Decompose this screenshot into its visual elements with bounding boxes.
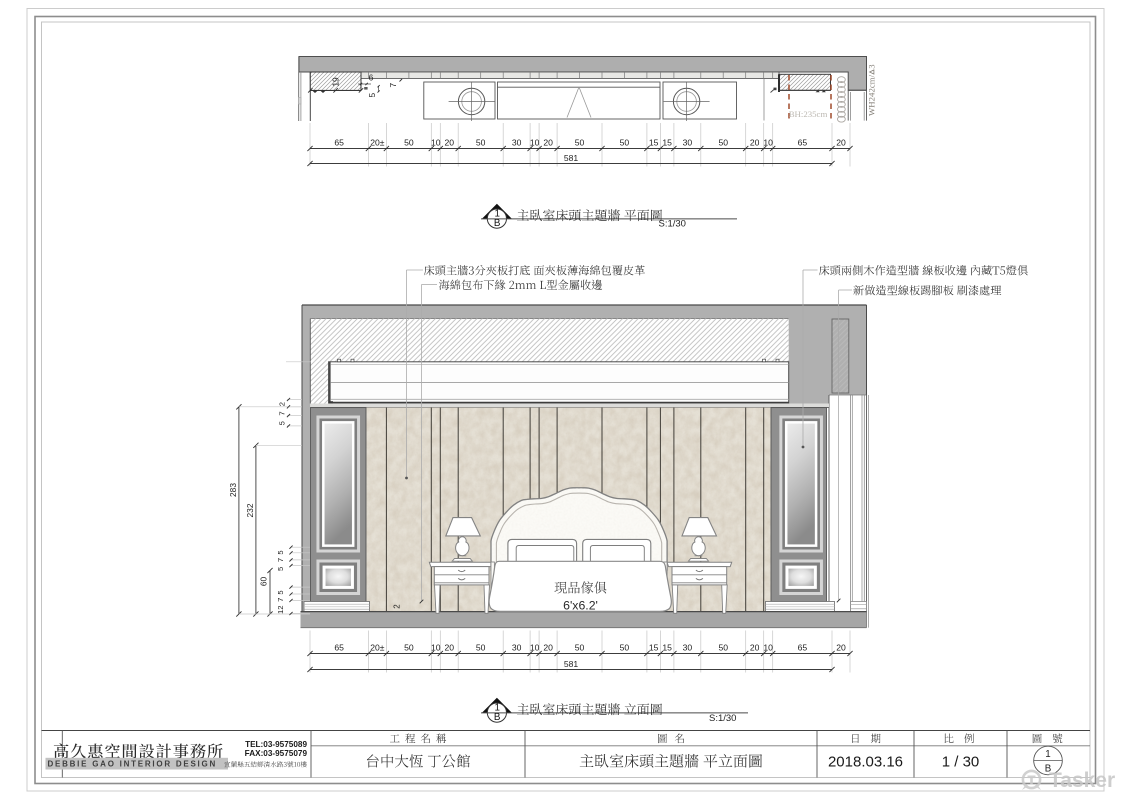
svg-text:15: 15	[649, 137, 659, 147]
svg-text:10: 10	[530, 642, 540, 652]
svg-text:50: 50	[476, 137, 486, 147]
svg-text:5: 5	[276, 550, 285, 554]
svg-text:30: 30	[683, 137, 693, 147]
svg-text:10: 10	[763, 642, 773, 652]
svg-text:50: 50	[476, 642, 486, 652]
svg-text:232: 232	[245, 503, 255, 517]
svg-text:50: 50	[404, 642, 414, 652]
svg-text:50: 50	[718, 642, 728, 652]
svg-text:50: 50	[718, 137, 728, 147]
svg-text:50: 50	[620, 137, 630, 147]
svg-text:BH:235cm: BH:235cm	[789, 109, 828, 119]
svg-text:10: 10	[763, 137, 773, 147]
svg-text:2: 2	[392, 604, 401, 609]
svg-text:FAX:03-9575079: FAX:03-9575079	[245, 749, 308, 758]
svg-text:6'x6.2': 6'x6.2'	[563, 599, 598, 613]
svg-text:3: 3	[867, 64, 877, 69]
svg-text:10: 10	[431, 642, 441, 652]
svg-text:10: 10	[530, 137, 540, 147]
svg-text:20: 20	[836, 642, 846, 652]
svg-text:20: 20	[543, 642, 553, 652]
svg-text:B: B	[494, 712, 501, 723]
svg-text:581: 581	[564, 659, 579, 669]
svg-text:WH242cm/: WH242cm/	[867, 74, 877, 116]
svg-text:30: 30	[683, 642, 693, 652]
svg-text:15: 15	[662, 642, 672, 652]
svg-text:5: 5	[367, 93, 377, 98]
svg-text:5: 5	[276, 590, 285, 594]
svg-text:1: 1	[1045, 749, 1050, 760]
svg-text:TEL:03-9575089: TEL:03-9575089	[245, 740, 307, 749]
svg-text:50: 50	[575, 137, 585, 147]
svg-text:50: 50	[404, 137, 414, 147]
svg-text:7: 7	[276, 598, 285, 602]
svg-text:7: 7	[388, 83, 398, 88]
svg-text:2: 2	[278, 402, 287, 406]
svg-text:581: 581	[564, 153, 579, 163]
svg-text:20: 20	[444, 137, 454, 147]
svg-text:20±: 20±	[370, 642, 385, 652]
svg-text:6: 6	[369, 72, 374, 82]
svg-text:50: 50	[620, 642, 630, 652]
svg-text:S:1/30: S:1/30	[709, 713, 736, 724]
svg-text:5: 5	[278, 421, 287, 425]
svg-text:7: 7	[278, 411, 287, 415]
svg-text:283: 283	[228, 483, 238, 497]
svg-text:65: 65	[334, 137, 344, 147]
svg-text:65: 65	[798, 642, 808, 652]
svg-text:30: 30	[512, 137, 522, 147]
svg-text:B: B	[494, 218, 501, 229]
svg-text:5: 5	[276, 567, 285, 571]
svg-text:30: 30	[512, 642, 522, 652]
svg-text:20: 20	[836, 137, 846, 147]
svg-text:19: 19	[331, 77, 341, 87]
svg-text:20±: 20±	[370, 137, 385, 147]
svg-text:50: 50	[575, 642, 585, 652]
svg-text:20: 20	[543, 137, 553, 147]
svg-text:20: 20	[444, 642, 454, 652]
svg-text:DEBBIE GAO INTERIOR DESIGN: DEBBIE GAO INTERIOR DESIGN	[48, 760, 218, 769]
svg-text:15: 15	[649, 642, 659, 652]
svg-text:Tasker: Tasker	[1049, 769, 1115, 792]
svg-text:15: 15	[662, 137, 672, 147]
svg-text:20: 20	[750, 137, 760, 147]
svg-text:60: 60	[259, 577, 269, 587]
svg-text:2018.03.16: 2018.03.16	[828, 754, 903, 771]
svg-text:12: 12	[276, 606, 285, 614]
svg-text:1 / 30: 1 / 30	[942, 754, 980, 771]
svg-text:65: 65	[798, 137, 808, 147]
svg-text:10: 10	[431, 137, 441, 147]
svg-text:20: 20	[750, 642, 760, 652]
svg-text:S:1/30: S:1/30	[659, 219, 686, 230]
svg-text:65: 65	[334, 642, 344, 652]
svg-text:7: 7	[276, 558, 285, 562]
